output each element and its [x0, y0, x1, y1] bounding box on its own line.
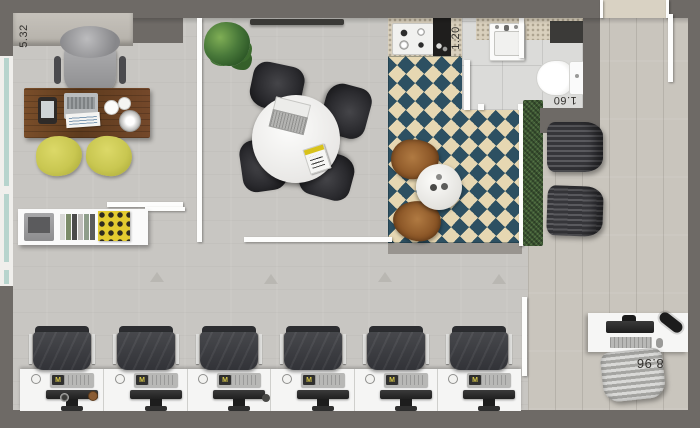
- keyboard-keys: [148, 375, 176, 385]
- chair-arm: [92, 334, 95, 364]
- cooktop: [392, 23, 434, 55]
- phone-screen: [41, 101, 54, 118]
- chair-arm: [176, 334, 179, 364]
- bathroom-door: [464, 60, 470, 110]
- binder: [66, 214, 71, 240]
- keyboard-logo: M: [386, 375, 398, 385]
- keyboard-logo: M: [52, 375, 64, 385]
- binder: [60, 214, 65, 240]
- mug: [365, 374, 375, 384]
- task-chair: [365, 326, 427, 372]
- chair-arm: [196, 334, 199, 364]
- storage-box: [98, 211, 130, 241]
- mug: [198, 374, 208, 384]
- laptop-keyboard: [67, 97, 95, 109]
- monitor-foot: [478, 406, 500, 411]
- keyboard: M: [50, 373, 94, 387]
- entry-door-opening: [603, 0, 666, 18]
- mug: [282, 374, 292, 384]
- floor-chevron: [264, 274, 278, 284]
- notepad-print: [309, 153, 325, 168]
- keyboard-logo: M: [219, 375, 231, 385]
- door-jamb: [600, 0, 603, 18]
- monitor: [297, 390, 349, 399]
- chair-arm: [509, 334, 512, 364]
- binder: [84, 214, 89, 240]
- floor-chevron: [492, 274, 506, 284]
- cup: [436, 174, 442, 180]
- mug: [448, 374, 458, 384]
- binder: [78, 214, 83, 240]
- guest-chair: [84, 134, 133, 178]
- dimension-label-office: 5.32: [17, 18, 31, 54]
- document-print: [69, 115, 97, 125]
- keyboard-keys: [315, 375, 343, 385]
- toilet: [536, 58, 586, 96]
- faucet-handle: [495, 25, 499, 29]
- chair-seat: [33, 332, 91, 370]
- desk-item: [88, 391, 98, 401]
- keyboard-logo: M: [303, 375, 315, 385]
- chair-arm: [259, 334, 262, 364]
- keyboard-logo: M: [136, 375, 148, 385]
- faucet-icon: [504, 25, 509, 31]
- guest-chair: [35, 134, 84, 177]
- workstation-4: M: [271, 322, 355, 414]
- lounge-armchair: [546, 185, 604, 237]
- task-chair: [282, 326, 344, 372]
- workstation-5: M: [354, 322, 438, 414]
- workstation-3: M: [187, 322, 271, 414]
- task-chair: [115, 326, 177, 372]
- desk-phone: [38, 97, 57, 124]
- monitor: [213, 390, 265, 399]
- floor-chevron: [378, 272, 392, 282]
- chair-arm: [280, 334, 283, 364]
- binder: [90, 214, 95, 240]
- cup: [430, 184, 437, 191]
- window: [0, 56, 13, 286]
- chair-arm: [54, 56, 61, 84]
- manager-monitor: [606, 321, 654, 333]
- rug-edge-wall: [388, 243, 522, 254]
- window-mullion: [0, 186, 13, 194]
- printer: [24, 213, 54, 241]
- monitor: [130, 390, 182, 399]
- lounge-armchair: [547, 122, 603, 172]
- office-sliding-door: [145, 207, 185, 211]
- monitor-foot: [395, 406, 417, 411]
- cup: [441, 183, 448, 190]
- monitor: [463, 390, 515, 399]
- desk-item: [60, 393, 69, 402]
- keyboard: M: [384, 373, 428, 387]
- coffee-cup: [118, 97, 131, 110]
- door-jamb: [478, 104, 484, 110]
- sink-basin: [494, 31, 521, 56]
- monitor-foot: [61, 406, 83, 411]
- keyboard-logo: M: [469, 375, 481, 385]
- dimension-label-bathroom: 1.60: [547, 93, 583, 107]
- plant: [204, 22, 250, 66]
- task-chair: [31, 326, 93, 372]
- mug: [115, 374, 125, 384]
- mug: [31, 374, 41, 384]
- floor-plan: M M M M M M 5.32: [0, 0, 700, 428]
- keyboard-keys: [231, 375, 259, 385]
- manager-keyboard: [610, 337, 652, 348]
- mouse: [656, 338, 663, 348]
- meeting-room-wall: [197, 18, 202, 242]
- monitor-foot: [145, 406, 167, 411]
- workstation-2: M: [104, 322, 188, 414]
- binder: [72, 214, 77, 240]
- dimension-label-open-space: 8.96: [628, 355, 672, 373]
- chair-seat: [200, 332, 258, 370]
- serving-tray: [119, 110, 141, 132]
- document: [66, 112, 101, 128]
- chair-arm: [113, 334, 116, 364]
- chair-arm: [426, 334, 429, 364]
- entry-door-leaf: [668, 14, 673, 82]
- chair-seat: [117, 332, 175, 370]
- faucet-handle: [514, 25, 518, 29]
- chair-arm: [29, 334, 32, 364]
- chair-arm: [119, 56, 126, 84]
- keyboard-keys: [64, 375, 92, 385]
- executive-chair: [52, 26, 124, 96]
- workstation-6: M: [437, 322, 521, 414]
- flush-button: [575, 74, 579, 78]
- right-wall: [688, 0, 700, 428]
- task-chair: [448, 326, 510, 372]
- monitor-foot: [312, 406, 334, 411]
- coffee-table: [416, 164, 462, 210]
- meeting-room-front-wall: [244, 237, 392, 242]
- keyboard-keys: [481, 375, 509, 385]
- bathroom-shelf: [550, 21, 584, 43]
- desk-item: [262, 394, 270, 402]
- chair-arm: [446, 334, 449, 364]
- chair-arm: [363, 334, 366, 364]
- kitchen-divider: [519, 18, 524, 58]
- keyboard-keys: [398, 375, 426, 385]
- task-chair: [198, 326, 260, 372]
- wall-stub: [522, 297, 527, 376]
- monitor-foot: [228, 406, 250, 411]
- monitor: [380, 390, 432, 399]
- window-mullion: [0, 262, 13, 270]
- printer-slot: [28, 217, 50, 233]
- window-glass: [4, 58, 9, 284]
- keyboard: M: [134, 373, 178, 387]
- wall-tv: [250, 19, 344, 25]
- keyboard: M: [467, 373, 511, 387]
- chair-seat: [450, 332, 508, 370]
- floor-chevron: [150, 272, 164, 282]
- keyboard: M: [301, 373, 345, 387]
- chair-headrest: [60, 26, 120, 58]
- keyboard: M: [217, 373, 261, 387]
- chair-arm: [343, 334, 346, 364]
- chair-seat: [284, 332, 342, 370]
- chair-seat: [367, 332, 425, 370]
- coffee-cup: [104, 100, 119, 115]
- dimension-label-kitchen: 1.20: [449, 20, 463, 56]
